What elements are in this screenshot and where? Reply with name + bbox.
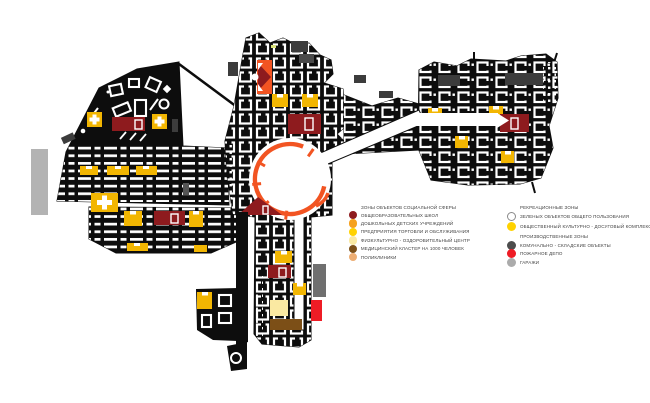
legend-color-swatch	[507, 249, 516, 258]
gateway-building	[257, 60, 272, 94]
legend-color-swatch	[349, 236, 357, 244]
legend-color-swatch	[349, 253, 357, 261]
legend-item: ЗЕЛЕНЫХ ОБЪЕКТОВ ОБЩЕГО ПОЛЬЗОВАНИЯ	[507, 211, 650, 221]
trade-building	[302, 94, 318, 107]
legend-color-swatch	[349, 228, 357, 236]
medical-cross-building	[87, 112, 102, 127]
legend-item: ПОЛИКЛИНИКИ	[349, 253, 470, 261]
legend-item: ОБЩЕОБРАЗОВАТЕЛЬНЫХ ШКОЛ	[349, 211, 470, 219]
trade-building	[136, 166, 157, 175]
district-south-small	[196, 288, 238, 341]
trade-building	[272, 94, 288, 107]
utility-unit	[299, 54, 314, 63]
legend-item: ДОШКОЛЬНЫХ ДЕТСКИХ УЧРЕЖДЕНИЙ	[349, 219, 470, 227]
legend-title: ЗОНЫ ОБЪЕКТОВ СОЦИАЛЬНОЙ СФЕРЫ	[349, 203, 470, 211]
utility-unit	[228, 62, 238, 76]
fitness-center-building	[270, 300, 288, 316]
utility-unit	[505, 73, 543, 85]
school-building	[112, 117, 145, 131]
legend-item: КОМУНАЛЬНО - СКЛАДСКИЕ ОБЪЕКТЫ	[507, 241, 650, 250]
medical-cross-building	[152, 114, 167, 129]
trade-building	[127, 243, 148, 251]
trade-building	[197, 292, 212, 309]
utility-unit	[183, 183, 189, 195]
legend-color-swatch	[349, 219, 357, 227]
legend-color-swatch	[507, 212, 516, 221]
garage-strip	[31, 149, 48, 215]
trade-building	[107, 166, 129, 175]
utility-unit	[354, 75, 366, 83]
school-building	[288, 114, 321, 134]
road-node	[252, 74, 259, 81]
trade-building	[189, 211, 203, 227]
legend-color-swatch	[349, 245, 357, 253]
legend-recreation-industrial: РЕКРЕАЦИОННЫЕ ЗОНЫ ЗЕЛЕНЫХ ОБЪЕКТОВ ОБЩЕ…	[507, 203, 650, 267]
urban-plan-page: ЗОНЫ ОБЪЕКТОВ СОЦИАЛЬНОЙ СФЕРЫ ОБЩЕОБРАЗ…	[0, 0, 650, 403]
utility-unit	[291, 41, 308, 52]
school-building	[268, 265, 291, 278]
warehouse-building	[313, 264, 326, 297]
legend-item: МЕДИЦИНСКИЙ КЛАСТЕР НА 1000 ЧЕЛОВЕК	[349, 245, 470, 253]
trade-building	[501, 151, 514, 163]
legend-color-swatch	[349, 211, 357, 219]
legend-item: ОБЩЕСТВЕННЫЙ КУЛЬТУРНО - ДОСУГОВЫЙ КОМПЛ…	[507, 221, 650, 231]
legend-title: ПРОИЗВОДСТВЕННЫЕ ЗОНЫ	[507, 231, 650, 241]
utility-unit	[438, 75, 460, 86]
polyclinic-cross-building	[91, 193, 118, 212]
legend-item: ФИЗКУЛЬТУРНО - ОЗДОРОВИТЕЛЬНЫЙ ЦЕНТР	[349, 236, 470, 244]
legend-color-swatch	[507, 222, 516, 231]
trade-building	[455, 136, 468, 148]
green-marker	[271, 45, 276, 48]
medical-cluster-building	[270, 319, 302, 330]
legend-title: РЕКРЕАЦИОННЫЕ ЗОНЫ	[507, 203, 650, 211]
utility-unit	[172, 119, 178, 132]
trade-building	[124, 211, 142, 226]
legend-item: ГАРАЖИ	[507, 258, 650, 267]
trade-building	[80, 166, 98, 175]
city-map	[0, 0, 650, 403]
legend-item: ПОЖАРНОЕ ДЕПО	[507, 249, 650, 258]
fire-depot-building	[311, 300, 322, 321]
trade-building	[194, 245, 207, 252]
legend-social-zones: ЗОНЫ ОБЪЕКТОВ СОЦИАЛЬНОЙ СФЕРЫ ОБЩЕОБРАЗ…	[349, 203, 470, 261]
legend-color-swatch	[507, 258, 516, 267]
trade-building	[275, 251, 292, 263]
legend-item: ПРЕДПРИЯТИЯ ТОРГОВЛИ И ОБСЛУЖИВАНИЯ	[349, 228, 470, 236]
utility-unit	[379, 91, 393, 98]
school-building	[154, 211, 185, 225]
trade-building	[293, 283, 306, 295]
